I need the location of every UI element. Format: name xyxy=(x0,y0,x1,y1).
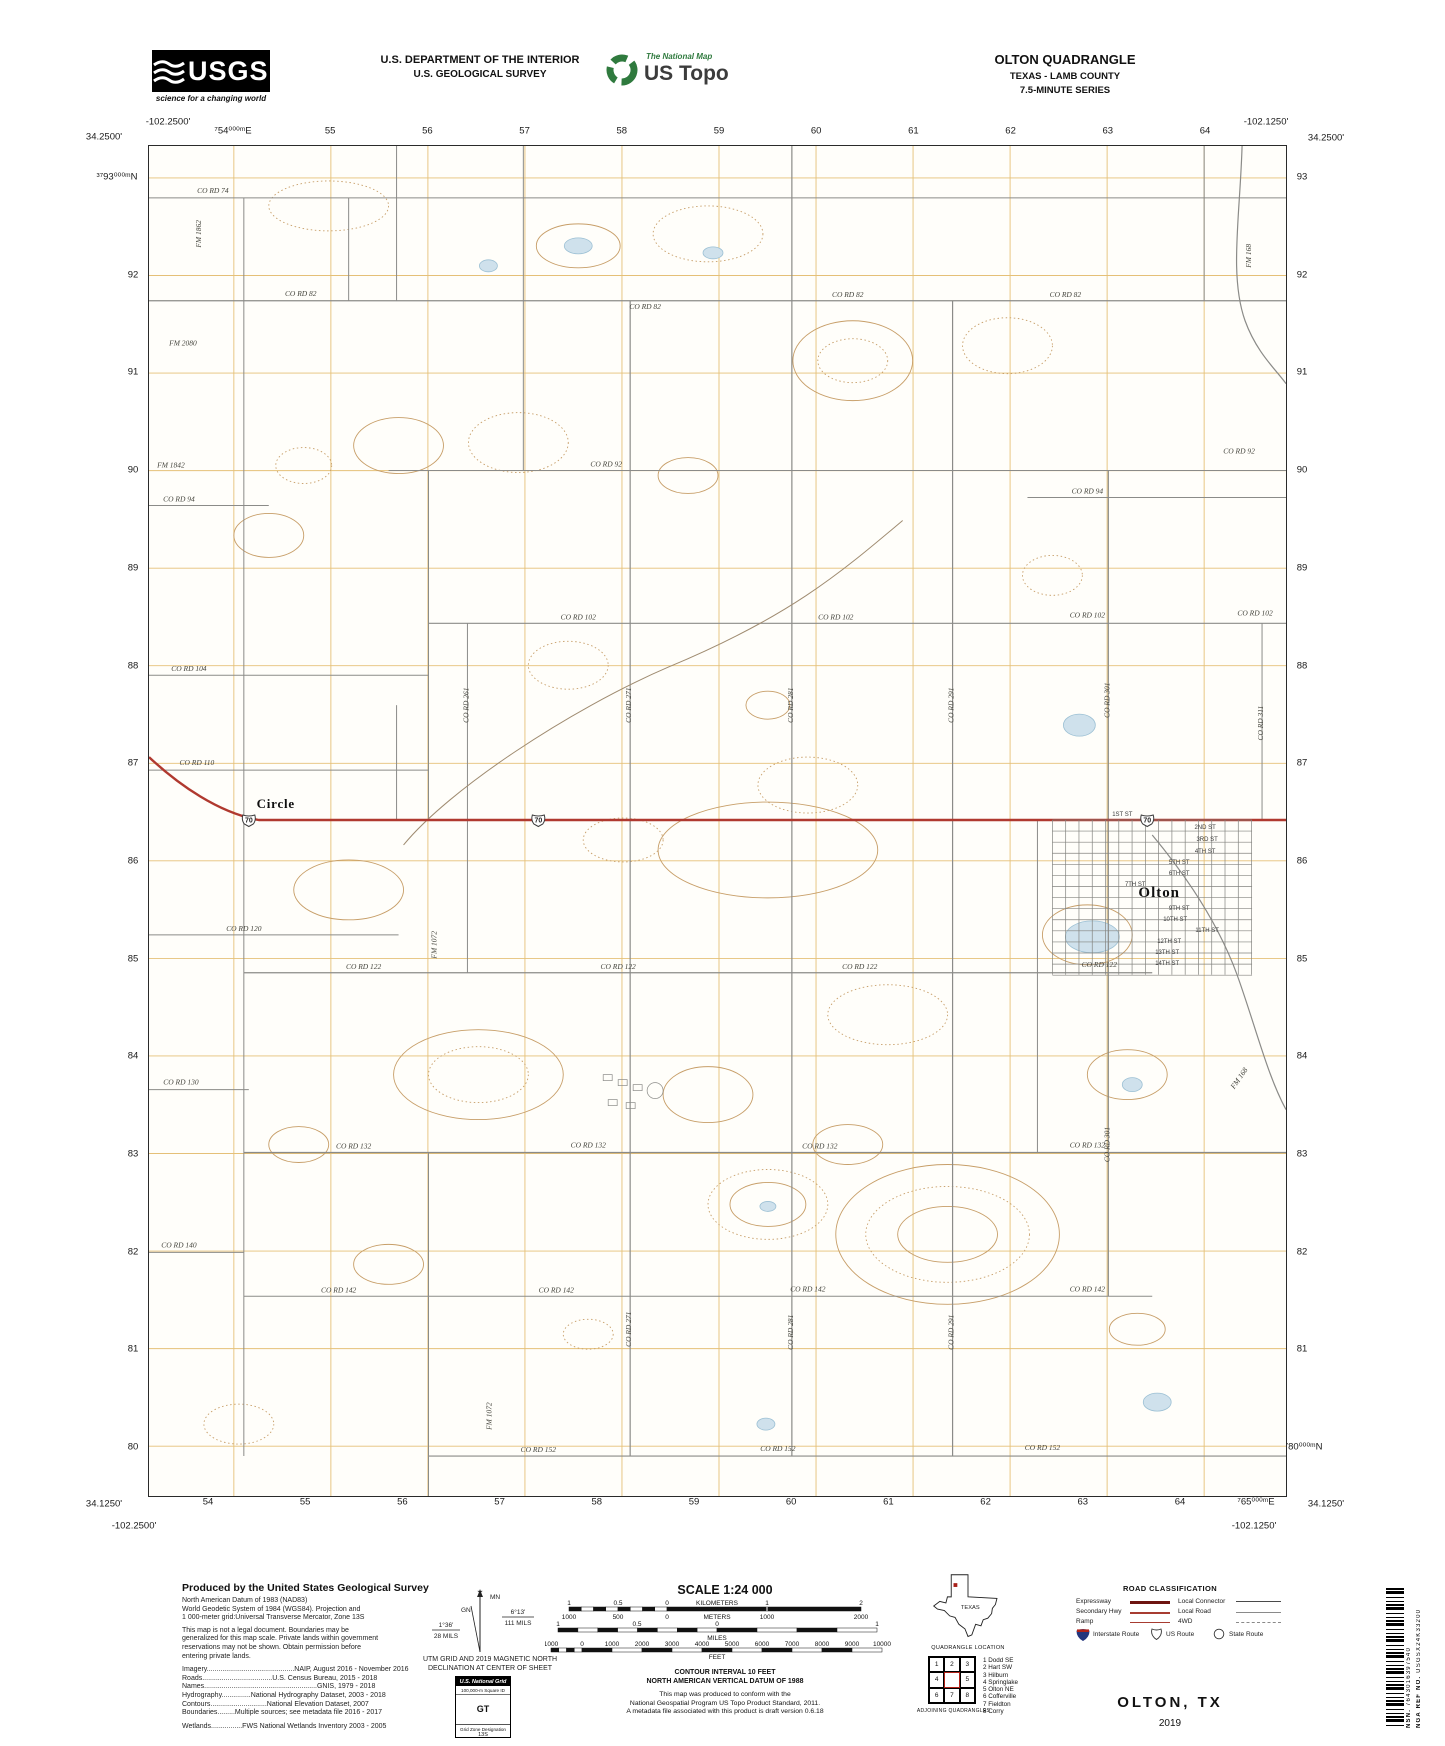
grid-label: 56 xyxy=(422,126,433,137)
svg-text:1: 1 xyxy=(556,1621,560,1628)
grid-label: 81 xyxy=(1297,1344,1308,1355)
svg-text:1000: 1000 xyxy=(562,1614,577,1621)
map-label: FM 2080 xyxy=(168,339,197,348)
svg-text:6000: 6000 xyxy=(755,1641,770,1648)
map-label: CO RD 142 xyxy=(539,1285,575,1294)
credits-title: Produced by the United States Geological… xyxy=(182,1582,472,1594)
adjoining-quad-name: 5 Olton NE xyxy=(983,1686,1018,1693)
grid-label: 57 xyxy=(494,1497,505,1508)
texas-outline: TEXAS xyxy=(928,1574,1008,1638)
quad-title: OLTON QUADRANGLE xyxy=(940,52,1190,67)
map-label: CO RD 132 xyxy=(802,1142,838,1151)
map-label: CO RD 132 xyxy=(336,1142,372,1151)
credits-lines: North American Datum of 1983 (NAD83)Worl… xyxy=(182,1597,472,1661)
department-heading: U.S. DEPARTMENT OF THE INTERIOR U.S. GEO… xyxy=(330,54,630,80)
legend-interstate-route: Interstate Route xyxy=(1093,1631,1139,1638)
grid-label: 63 xyxy=(1103,126,1114,137)
local-connector-line-sample xyxy=(1236,1601,1281,1602)
corner-top-right-lon: -102.1250' xyxy=(1244,117,1289,128)
grid-label: 59 xyxy=(689,1497,700,1508)
map-label: 2ND ST xyxy=(1194,825,1216,831)
map-label: CO RD 261 xyxy=(461,688,470,723)
map-label: CO RD 82 xyxy=(832,290,864,299)
map-label: 6TH ST xyxy=(1169,871,1190,877)
grid-label: 84 xyxy=(1297,1051,1308,1062)
credits-source: Contours.............................Nat… xyxy=(182,1701,472,1710)
grid-label: 80 xyxy=(128,1442,139,1453)
map-label: CO RD 142 xyxy=(1070,1284,1106,1293)
svg-text:500: 500 xyxy=(613,1614,624,1621)
svg-text:2000: 2000 xyxy=(635,1641,650,1648)
svg-text:0.5: 0.5 xyxy=(632,1621,641,1628)
svg-text:70: 70 xyxy=(245,817,253,824)
svg-text:METERS: METERS xyxy=(703,1614,731,1621)
svg-text:★: ★ xyxy=(477,1588,483,1596)
adjoining-cell: 2 xyxy=(944,1657,959,1672)
ustopo-brand: US Topo xyxy=(644,62,729,86)
map-label: CO RD 122 xyxy=(842,962,878,971)
map-label: Circle xyxy=(257,796,295,811)
map-label: CO RD 140 xyxy=(161,1240,197,1249)
svg-text:7000: 7000 xyxy=(785,1641,800,1648)
mn-label: MN xyxy=(490,1594,500,1601)
grid-label: 88 xyxy=(128,660,139,671)
svg-text:2000: 2000 xyxy=(854,1614,869,1621)
map-label: FM 1862 xyxy=(194,220,203,249)
mn-degrees: 6°13' xyxy=(511,1608,526,1616)
grid-label: 54 xyxy=(203,1497,214,1508)
map-label: CO RD 311 xyxy=(1256,706,1265,741)
svg-text:2: 2 xyxy=(859,1600,863,1607)
barcode xyxy=(1386,1588,1404,1726)
topo-sheet: USGS science for a changing world U.S. D… xyxy=(0,0,1445,1746)
scale-title: SCALE 1:24 000 xyxy=(545,1583,905,1597)
grid-label: 60 xyxy=(811,126,822,137)
adjoining-quad-name: 1 Dodd SE xyxy=(983,1657,1018,1664)
grid-label: 88 xyxy=(1297,660,1308,671)
usng-square-id-label: 100,000-m Square ID xyxy=(456,1688,510,1695)
map-label: CO RD 82 xyxy=(285,289,317,298)
grid-label: 81 xyxy=(128,1344,139,1355)
map-label: CO RD 281 xyxy=(786,688,795,723)
expressway-line-sample xyxy=(1130,1601,1170,1604)
map-label: CO RD 110 xyxy=(180,758,215,767)
contour-interval-note: CONTOUR INTERVAL 10 FEET NORTH AMERICAN … xyxy=(560,1668,890,1686)
map-label: FM 168 xyxy=(1244,244,1253,269)
conformity-note: This map was produced to conform with th… xyxy=(540,1691,910,1717)
usgs-tagline: science for a changing world xyxy=(150,94,272,103)
map-label: CO RD 152 xyxy=(1025,1443,1061,1452)
corner-top-left-lat: 34.2500' xyxy=(86,132,122,143)
interstate-shield-icon xyxy=(1076,1628,1090,1641)
map-label: CO RD 271 xyxy=(624,688,633,723)
grid-label: 58 xyxy=(592,1497,603,1508)
quad-location-dot xyxy=(954,1583,958,1587)
legend-secondary-hwy: Secondary Hwy xyxy=(1076,1608,1122,1615)
credits-source: Hydrography...............National Hydro… xyxy=(182,1692,472,1701)
grid-label: 62 xyxy=(980,1497,991,1508)
svg-text:70: 70 xyxy=(1143,817,1151,824)
usng-zone-label: Grid Zone Designation xyxy=(456,1724,510,1732)
usng-box: U.S. National Grid 100,000-m Square ID G… xyxy=(455,1676,511,1738)
us-route-shield: 70 xyxy=(532,815,545,826)
legend-ramp: Ramp xyxy=(1076,1618,1093,1625)
adjoining-quad-name: 6 Cofferville xyxy=(983,1693,1018,1700)
national-map-brand: The National Map xyxy=(646,52,712,61)
map-label: CO RD 301 xyxy=(1102,1127,1111,1162)
local-road-line-sample xyxy=(1236,1612,1281,1613)
corner-bottom-right-lat: 34.1250' xyxy=(1308,1499,1344,1510)
map-label: CO RD 281 xyxy=(786,1315,795,1350)
svg-text:0: 0 xyxy=(665,1600,669,1607)
map-label: CO RD 102 xyxy=(1237,608,1273,617)
map-label: 14TH ST xyxy=(1155,961,1179,967)
grid-label: 62 xyxy=(1005,126,1016,137)
road-classification-title: ROAD CLASSIFICATION xyxy=(1080,1584,1260,1593)
map-label: 1ST ST xyxy=(1112,812,1133,818)
adjoining-cell: 3 xyxy=(960,1657,975,1672)
map-label: 3RD ST xyxy=(1196,837,1218,843)
map-label: CO RD 94 xyxy=(1072,486,1104,495)
topo-map: 707070CircleOltonCO RD 74CO RD 82CO RD 8… xyxy=(149,146,1286,1496)
quad-series: 7.5-MINUTE SERIES xyxy=(940,85,1190,96)
corner-top-left-lon: -102.2500' xyxy=(146,117,191,128)
map-label: CO RD 102 xyxy=(561,612,597,621)
nsn-text: NSN. 7643016397540 xyxy=(1406,1588,1412,1728)
adjoining-cell: 7 xyxy=(944,1688,959,1703)
adjoining-quad-name: 3 Hilburn xyxy=(983,1672,1018,1679)
svg-text:FEET: FEET xyxy=(709,1654,726,1660)
grid-label: 82 xyxy=(1297,1246,1308,1257)
usgs-acronym: USGS xyxy=(188,56,269,87)
map-label: 12TH ST xyxy=(1157,939,1181,945)
grid-label: 89 xyxy=(128,562,139,573)
corner-bottom-right-lon: -102.1250' xyxy=(1232,1521,1277,1532)
legend-local-connector: Local Connector xyxy=(1178,1598,1225,1605)
svg-text:1000: 1000 xyxy=(605,1641,620,1648)
svg-text:1000: 1000 xyxy=(545,1641,559,1648)
credits-sources: Imagery.................................… xyxy=(182,1666,472,1731)
credits-line: 1 000-meter grid:Universal Transverse Me… xyxy=(182,1614,472,1623)
svg-text:8000: 8000 xyxy=(815,1641,830,1648)
map-label: CO RD 271 xyxy=(624,1312,633,1347)
usng-zone: 13S xyxy=(456,1732,510,1738)
adjoining-cell: 5 xyxy=(960,1672,975,1687)
credits-source: Wetlands................FWS National Wet… xyxy=(182,1723,472,1732)
map-label: CO RD 142 xyxy=(321,1285,357,1294)
grid-label: ³⁷93⁰⁰⁰ᵐN xyxy=(97,172,138,183)
map-label: 7TH ST xyxy=(1125,882,1146,888)
legend-local-road: Local Road xyxy=(1178,1608,1211,1615)
credits-line: reservations may not be shown. Obtain pe… xyxy=(182,1644,472,1653)
ustopo-logo: The National Map US Topo xyxy=(604,46,754,98)
grid-label: 55 xyxy=(300,1497,311,1508)
corner-top-right-lat: 34.2500' xyxy=(1308,133,1344,144)
grid-label: 86 xyxy=(1297,855,1308,866)
grid-label: 89 xyxy=(1297,562,1308,573)
map-canvas: 707070CircleOltonCO RD 74CO RD 82CO RD 8… xyxy=(148,145,1287,1497)
adjoining-quad-name: 8 Corry xyxy=(983,1708,1018,1715)
quad-region: TEXAS - LAMB COUNTY xyxy=(940,71,1190,82)
map-label: 10TH ST xyxy=(1163,917,1187,923)
adjoining-quad-name: 4 Springlake xyxy=(983,1679,1018,1686)
map-label: CO RD 82 xyxy=(1050,290,1082,299)
svg-text:9000: 9000 xyxy=(845,1641,860,1648)
texas-label: TEXAS xyxy=(961,1605,980,1611)
legend-expressway: Expressway xyxy=(1076,1598,1111,1605)
map-label: FM 168 xyxy=(1228,1066,1250,1092)
dept-line2: U.S. GEOLOGICAL SURVEY xyxy=(330,69,630,80)
svg-text:0: 0 xyxy=(715,1621,719,1628)
map-label: CO RD 104 xyxy=(171,664,207,673)
credits-source: Roads...................................… xyxy=(182,1675,472,1684)
usgs-wave-icon xyxy=(152,51,186,91)
fourwd-line-sample xyxy=(1236,1622,1281,1623)
grid-label: 63 xyxy=(1078,1497,1089,1508)
map-label: CO RD 152 xyxy=(521,1445,557,1454)
quadrangle-title-block: OLTON QUADRANGLE TEXAS - LAMB COUNTY 7.5… xyxy=(940,52,1190,96)
ustopo-icon xyxy=(604,52,640,88)
grid-label: ³⁷80⁰⁰⁰ᵐN xyxy=(1282,1442,1323,1453)
us-route-shield-icon xyxy=(1150,1628,1163,1640)
grid-label: 85 xyxy=(128,953,139,964)
scale-bars: 1 0.5 0 KILOMETERS 1 2 1000 500 0 METERS… xyxy=(545,1598,905,1660)
grid-label: 60 xyxy=(786,1497,797,1508)
svg-text:KILOMETERS: KILOMETERS xyxy=(696,1600,739,1607)
grid-label: 92 xyxy=(1297,269,1308,280)
credits-line: North American Datum of 1983 (NAD83) xyxy=(182,1597,472,1606)
credits-source: Boundaries.........Multiple sources; see… xyxy=(182,1709,472,1718)
sheet-name: OLTON, TX xyxy=(1090,1694,1250,1711)
svg-text:70: 70 xyxy=(534,817,542,824)
legend-4wd: 4WD xyxy=(1178,1618,1192,1625)
credits-line: generalized for this map scale. Private … xyxy=(182,1635,472,1644)
map-label: CO RD 132 xyxy=(571,1141,607,1150)
grid-label: 90 xyxy=(1297,465,1308,476)
grid-label: 84 xyxy=(128,1051,139,1062)
gn-mils: 28 MILS xyxy=(434,1633,459,1640)
grid-label: 61 xyxy=(883,1497,894,1508)
svg-text:1000: 1000 xyxy=(760,1614,775,1621)
map-label: CO RD 152 xyxy=(760,1444,796,1453)
map-label: CO RD 82 xyxy=(629,302,661,311)
map-label: FM 1072 xyxy=(429,931,438,960)
gn-label: GN xyxy=(461,1607,471,1614)
svg-text:1: 1 xyxy=(765,1600,769,1607)
grid-label: 82 xyxy=(128,1246,139,1257)
svg-text:4000: 4000 xyxy=(695,1641,710,1648)
map-label: CO RD 130 xyxy=(163,1078,199,1087)
svg-text:1: 1 xyxy=(875,1621,879,1628)
grid-label: 64 xyxy=(1200,126,1211,137)
declination-diagram: ★ MN GN 6°13' 111 MILS 1°36' 28 MILS xyxy=(430,1586,560,1656)
grid-label: 83 xyxy=(128,1149,139,1160)
map-label: CO RD 102 xyxy=(1070,610,1106,619)
grid-label: 58 xyxy=(617,126,628,137)
grid-label: 64 xyxy=(1175,1497,1186,1508)
svg-text:5000: 5000 xyxy=(725,1641,740,1648)
svg-text:0.5: 0.5 xyxy=(613,1600,622,1607)
grid-label: 56 xyxy=(397,1497,408,1508)
adjoining-cell: 8 xyxy=(960,1688,975,1703)
map-label: FM 1072 xyxy=(484,1402,493,1431)
adjoining-quadrangles-list: 1 Dodd SE2 Hart SW3 Hilburn4 Springlake5… xyxy=(983,1657,1018,1715)
map-label: FM 1842 xyxy=(156,461,185,470)
usgs-logo: USGS xyxy=(152,50,270,92)
map-label: 4TH ST xyxy=(1195,849,1216,855)
nga-ref-text: NGA REF NO. USGSX24K33200 xyxy=(1416,1588,1422,1728)
map-label: 9TH ST xyxy=(1169,906,1190,912)
corner-bottom-left-lat: 34.1250' xyxy=(86,1499,122,1510)
dept-line1: U.S. DEPARTMENT OF THE INTERIOR xyxy=(330,54,630,66)
grid-label: 93 xyxy=(1297,172,1308,183)
map-label: CO RD 132 xyxy=(1070,1141,1106,1150)
map-label: CO RD 102 xyxy=(818,612,854,621)
legend-state-route: State Route xyxy=(1229,1631,1263,1638)
svg-text:0: 0 xyxy=(665,1614,669,1621)
grid-label: 90 xyxy=(128,465,139,476)
quad-location-caption: QUADRANGLE LOCATION xyxy=(928,1645,1008,1651)
adjoining-cell: 6 xyxy=(929,1688,944,1703)
grid-label: ⁷54⁰⁰⁰ᵐE xyxy=(214,126,251,137)
grid-label: 87 xyxy=(1297,758,1308,769)
svg-text:1: 1 xyxy=(567,1600,571,1607)
us-route-shield: 70 xyxy=(1141,815,1154,826)
map-label: CO RD 94 xyxy=(163,494,195,503)
map-label: CO RD 122 xyxy=(346,962,382,971)
grid-label: ⁷65⁰⁰⁰ᵐE xyxy=(1237,1497,1274,1508)
grid-label: 86 xyxy=(128,855,139,866)
svg-text:10000: 10000 xyxy=(873,1641,891,1648)
adjoining-cell: 1 xyxy=(929,1657,944,1672)
map-label: CO RD 120 xyxy=(226,924,262,933)
map-label: 13TH ST xyxy=(1155,950,1179,956)
grid-label: 91 xyxy=(128,367,139,378)
usng-square-id: GT xyxy=(456,1704,510,1714)
mn-mils: 111 MILS xyxy=(505,1620,533,1627)
grid-label: 83 xyxy=(1297,1149,1308,1160)
grid-label: 92 xyxy=(128,269,139,280)
grid-label: 91 xyxy=(1297,367,1308,378)
adjoining-quad-name: 2 Hart SW xyxy=(983,1664,1018,1671)
grid-label: 61 xyxy=(908,126,919,137)
map-label: CO RD 74 xyxy=(197,186,229,195)
quadrangle-location: TEXAS QUADRANGLE LOCATION xyxy=(928,1574,1008,1651)
gn-degrees: 1°36' xyxy=(439,1621,454,1629)
credits-line: World Geodetic System of 1984 (WGS84). P… xyxy=(182,1606,472,1615)
map-label: 11TH ST xyxy=(1195,928,1219,934)
credits-line: This map is not a legal document. Bounda… xyxy=(182,1627,472,1636)
grid-label: 57 xyxy=(519,126,530,137)
svg-text:3000: 3000 xyxy=(665,1641,680,1648)
map-label: CO RD 92 xyxy=(1223,447,1255,456)
adjoining-quad-name: 7 Fieldton xyxy=(983,1701,1018,1708)
svg-text:0: 0 xyxy=(580,1641,584,1648)
map-label: 5TH ST xyxy=(1169,860,1190,866)
credits-source: Names...................................… xyxy=(182,1683,472,1692)
legend-us-route: US Route xyxy=(1166,1631,1194,1638)
grid-label: 59 xyxy=(714,126,725,137)
adjoining-quadrangles-grid: 12345678 xyxy=(928,1656,976,1704)
state-route-icon xyxy=(1213,1628,1225,1640)
grid-label: 85 xyxy=(1297,953,1308,964)
grid-label: 55 xyxy=(325,126,336,137)
grid-label: 87 xyxy=(128,758,139,769)
ramp-line-sample xyxy=(1130,1622,1170,1623)
adjoining-cell: 4 xyxy=(929,1672,944,1687)
corner-bottom-left-lon: -102.2500' xyxy=(112,1521,157,1532)
usng-title: U.S. National Grid xyxy=(456,1677,510,1686)
map-label: CO RD 291 xyxy=(947,688,956,723)
map-label: CO RD 301 xyxy=(1102,683,1111,718)
adjoining-cell xyxy=(944,1672,959,1687)
map-label: CO RD 122 xyxy=(1082,960,1118,969)
secondary-hwy-line-sample xyxy=(1130,1612,1170,1614)
map-label: CO RD 291 xyxy=(947,1315,956,1350)
sheet-year: 2019 xyxy=(1090,1718,1250,1729)
map-label: CO RD 142 xyxy=(790,1284,826,1293)
map-label: CO RD 92 xyxy=(590,460,622,469)
map-label: CO RD 122 xyxy=(601,962,637,971)
